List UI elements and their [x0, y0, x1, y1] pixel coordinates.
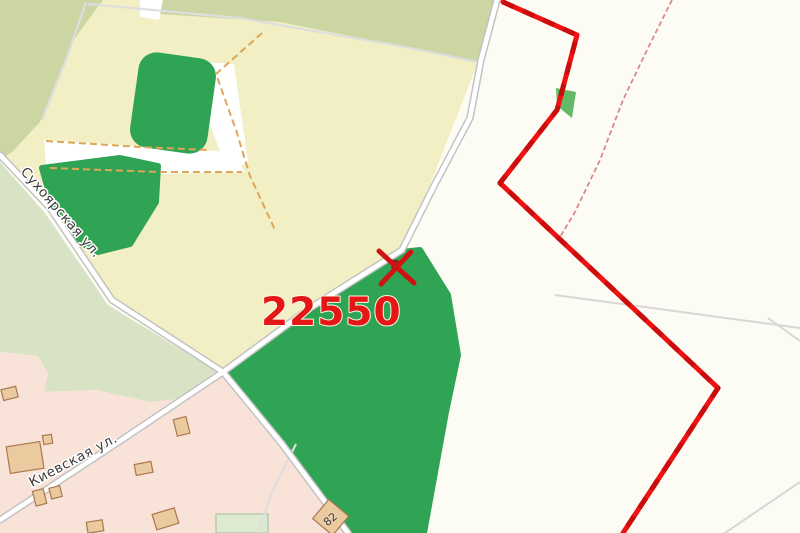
building [86, 520, 104, 533]
building [42, 434, 52, 444]
forest-patch-north [128, 50, 219, 156]
building [49, 486, 62, 499]
map-view[interactable]: Сухоярская ул. Киевская ул. 82 22550 [0, 0, 800, 533]
building [6, 442, 44, 474]
parcel-number-label: 22550 [261, 290, 402, 335]
map-canvas[interactable]: Сухоярская ул. Киевская ул. 82 22550 [0, 0, 800, 533]
building [134, 461, 153, 475]
